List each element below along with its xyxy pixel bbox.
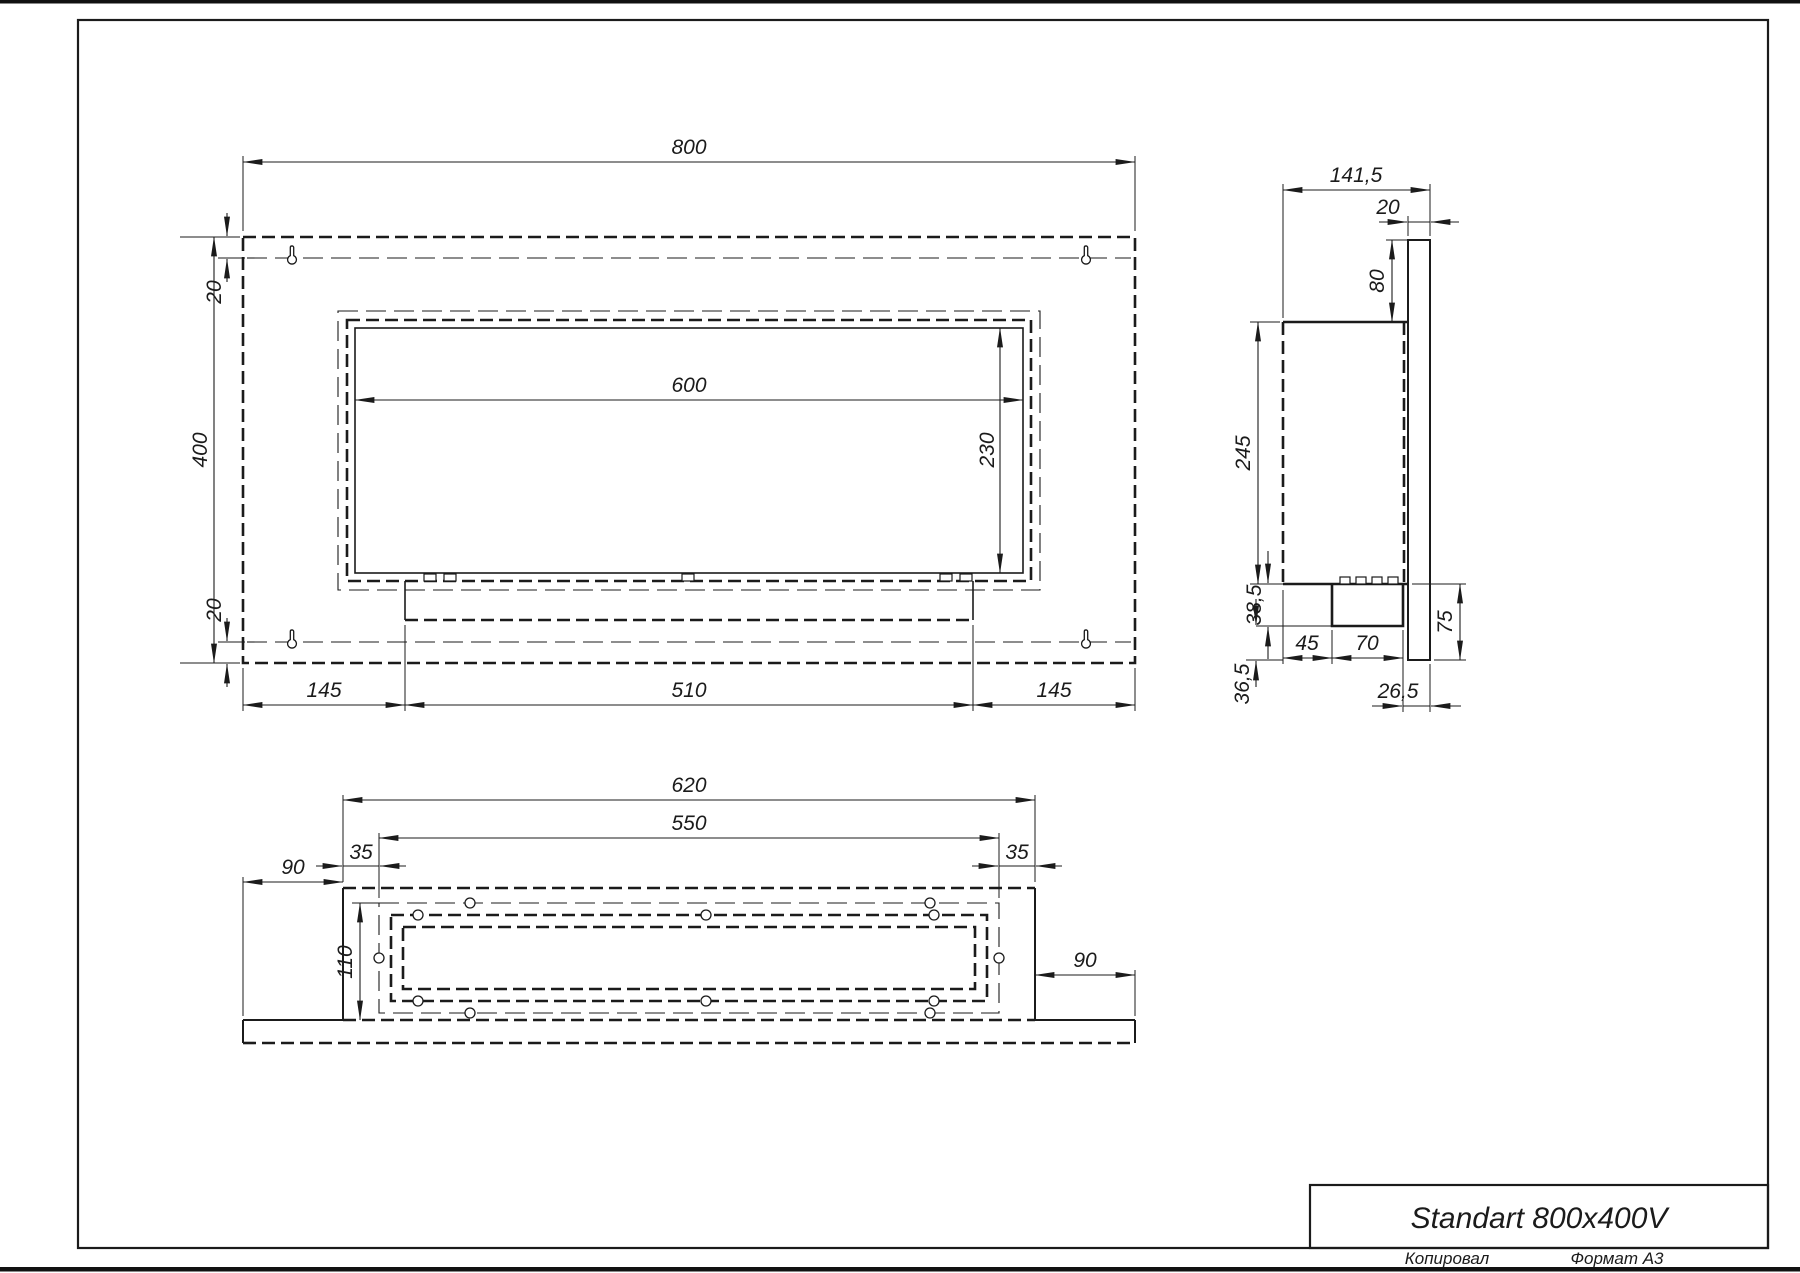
mounting-hole-icon xyxy=(929,910,939,920)
dim-70-label: 70 xyxy=(1355,632,1379,655)
title-block: Standart 800x400V Копировал Формат А3 xyxy=(1310,1185,1768,1268)
dim-35-right-label: 35 xyxy=(1005,841,1029,864)
dim-510-label: 510 xyxy=(671,679,706,702)
front-view: 800 400 20 20 600 230 145 510 145 xyxy=(180,136,1135,711)
dim-80-label: 80 xyxy=(1366,269,1389,293)
tray-tab xyxy=(940,574,952,581)
dim-800-label: 800 xyxy=(671,136,706,159)
front-panel-outline xyxy=(243,237,1135,663)
mounting-hole-icon xyxy=(465,1008,475,1018)
dim-90-right-label: 90 xyxy=(1073,949,1097,972)
dim-600-label: 600 xyxy=(671,374,706,397)
side-burner xyxy=(1332,584,1403,626)
keyhole-icon xyxy=(288,246,297,264)
dim-400-label: 400 xyxy=(189,432,212,467)
dim-230-label: 230 xyxy=(976,432,999,468)
mounting-hole-icon xyxy=(413,910,423,920)
side-view: 141,5 20 80 245 38,5 45 70 36,5 xyxy=(1231,164,1466,712)
dim-245-label: 245 xyxy=(1232,435,1255,471)
tray-tab xyxy=(960,574,972,581)
bottom-view: 620 550 35 35 90 90 110 xyxy=(243,774,1135,1043)
burner-tab xyxy=(1388,577,1398,584)
dim-75-label: 75 xyxy=(1434,610,1457,634)
drawing-page: 800 400 20 20 600 230 145 510 145 xyxy=(0,0,1800,1273)
opening-outline xyxy=(355,328,1023,573)
insert-inner-outline xyxy=(403,927,975,989)
keyhole-icon xyxy=(1082,246,1091,264)
insert-outer-outline xyxy=(379,903,999,1013)
burner-tab xyxy=(1340,577,1350,584)
dim-141-5-label: 141,5 xyxy=(1330,164,1383,187)
dim-110-label: 110 xyxy=(334,945,357,979)
tray-tab xyxy=(682,574,694,581)
dim-90-left-label: 90 xyxy=(281,856,305,879)
mounting-hole-icon xyxy=(925,1008,935,1018)
dim-38-5-label: 38,5 xyxy=(1243,584,1266,625)
mounting-hole-icon xyxy=(465,898,475,908)
drawing-canvas: 800 400 20 20 600 230 145 510 145 xyxy=(0,0,1800,1273)
dim-550-label: 550 xyxy=(671,812,706,835)
dim-36-5-label: 36,5 xyxy=(1231,663,1254,704)
copied-label: Копировал xyxy=(1405,1249,1490,1268)
keyhole-icon xyxy=(288,630,297,648)
dim-26-5-label: 26,5 xyxy=(1377,680,1419,703)
burner-tab xyxy=(1356,577,1366,584)
box-hidden-outline xyxy=(338,311,1040,590)
dim-620-label: 620 xyxy=(671,774,706,797)
mounting-hole-icon xyxy=(413,996,423,1006)
dim-145-left-label: 145 xyxy=(306,679,341,702)
burner-tab xyxy=(1372,577,1382,584)
mounting-hole-icon xyxy=(701,910,711,920)
dim-35-left-label: 35 xyxy=(349,841,373,864)
mounting-hole-icon xyxy=(374,953,384,963)
tray-tab xyxy=(424,574,436,581)
title-text: Standart 800x400V xyxy=(1411,1202,1671,1235)
mounting-hole-icon xyxy=(925,898,935,908)
opening-hidden-outline xyxy=(347,320,1031,581)
format-label: Формат А3 xyxy=(1570,1249,1664,1268)
rear-panel xyxy=(1408,240,1430,660)
mounting-hole-icon xyxy=(701,996,711,1006)
dim-45-label: 45 xyxy=(1295,632,1319,655)
dim-20-top-label: 20 xyxy=(203,280,226,305)
tray-tab xyxy=(444,574,456,581)
dim-20-bottom-label: 20 xyxy=(203,598,226,623)
dim-145-right-label: 145 xyxy=(1036,679,1071,702)
dim-20-panel-label: 20 xyxy=(1375,196,1400,219)
page-top-edge xyxy=(0,0,1800,4)
mounting-hole-icon xyxy=(929,996,939,1006)
page-bottom-edge xyxy=(0,1267,1800,1272)
keyhole-icon xyxy=(1082,630,1091,648)
mounting-hole-icon xyxy=(994,953,1004,963)
drawing-frame xyxy=(78,20,1768,1248)
